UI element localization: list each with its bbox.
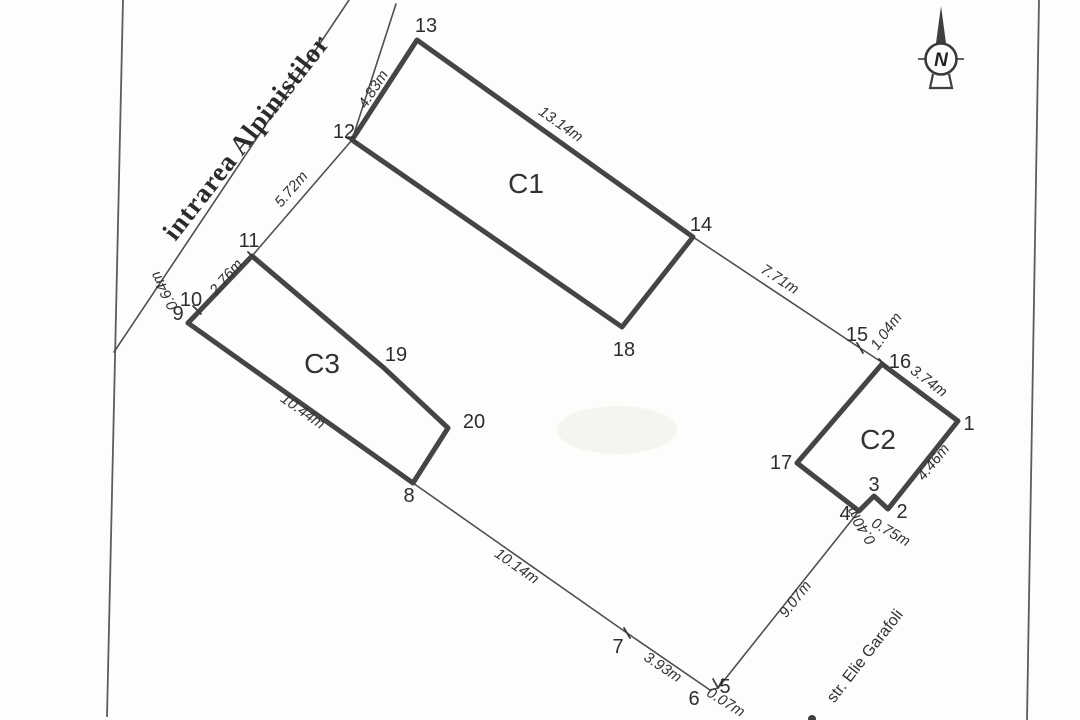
point-label-13: 13: [415, 15, 437, 37]
dim-label-1-2: 4.46m: [914, 441, 953, 484]
north-arrow: N: [918, 6, 964, 88]
point-label-11: 11: [239, 230, 260, 252]
dim-label-10-9: 0.64m: [147, 268, 182, 313]
point-label-1: 1: [963, 413, 974, 435]
dim-label-15-16: 1.04m: [867, 309, 905, 353]
point-label-18: 18: [613, 339, 635, 361]
street-name-elie-garafoli: str. Elie Garafoli: [824, 607, 907, 706]
point-label-20: 20: [463, 411, 485, 433]
point-label-3: 3: [868, 474, 879, 496]
tick-point-7: [624, 628, 630, 638]
dim-label-6-7: 3.93m: [641, 649, 685, 686]
building-c3-label: C3: [304, 348, 340, 379]
boundary-12-11: [252, 140, 352, 256]
page-border-left: [107, 0, 123, 717]
dim-label-7-8: 10.14m: [491, 545, 542, 588]
point-label-14: 14: [690, 214, 712, 236]
cut-off-glyph: [808, 715, 816, 720]
dim-label-8-9: 10.44m: [277, 390, 328, 433]
street-name-intrarea-alpinistilor: intrarea Alpinistilor: [157, 28, 336, 245]
dim-label-13-14: 13.14m: [535, 103, 586, 146]
north-arrow-base: [930, 74, 952, 88]
point-label-8: 8: [403, 485, 414, 507]
dim-label-4-5: 9.07m: [776, 578, 815, 621]
point-label-19: 19: [385, 344, 407, 366]
building-c1-label: C1: [508, 168, 544, 199]
point-label-2: 2: [896, 501, 907, 523]
north-arrow-letter: N: [934, 50, 949, 71]
north-arrow-spike: [936, 6, 947, 47]
point-label-6: 6: [688, 688, 699, 710]
dim-label-14-15: 7.71m: [758, 261, 802, 298]
dim-label-11-10: 2.76m: [206, 256, 247, 299]
cadastral-plan-page: 13 12 11 10 9 19 20 8 18 14 15 16 1 17 3…: [0, 0, 1080, 720]
dim-label-16-1: 3.74m: [907, 362, 951, 401]
page-border-right: [1027, 0, 1039, 720]
point-label-7: 7: [612, 636, 623, 658]
dim-label-12-11: 5.72m: [271, 168, 311, 211]
point-label-15: 15: [846, 324, 868, 346]
cadastral-plan-drawing: 13 12 11 10 9 19 20 8 18 14 15 16 1 17 3…: [0, 0, 1080, 720]
point-label-17: 17: [770, 452, 792, 474]
point-label-12: 12: [333, 121, 355, 143]
point-label-16: 16: [889, 351, 911, 373]
scan-smudge: [557, 406, 677, 454]
building-c2-label: C2: [860, 424, 896, 455]
